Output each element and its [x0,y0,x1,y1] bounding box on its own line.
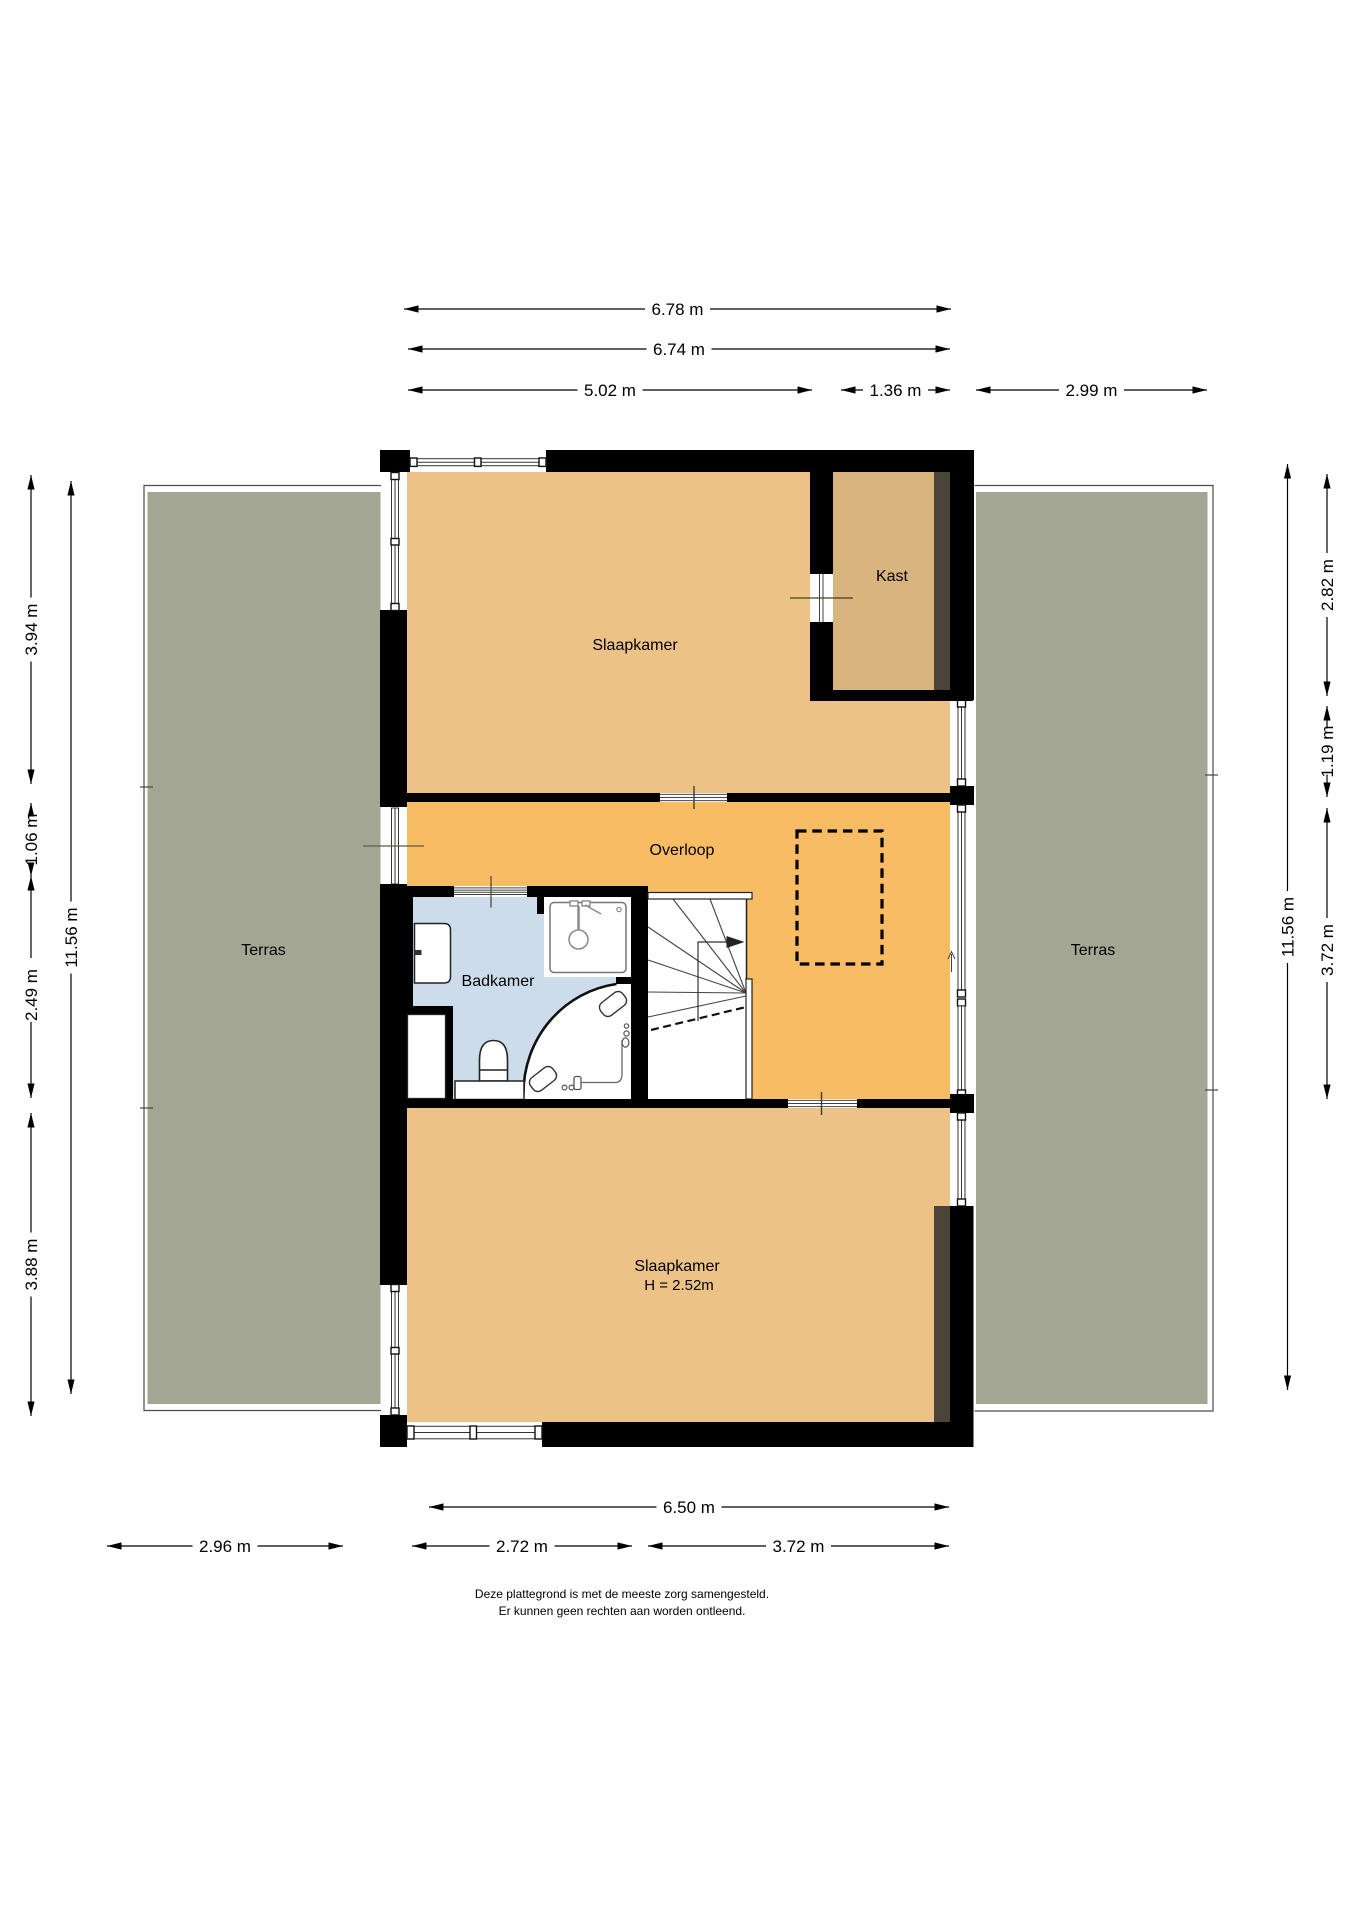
svg-text:Terras: Terras [1071,942,1115,959]
svg-text:Terras: Terras [241,942,285,959]
svg-text:3.88 m: 3.88 m [22,1239,41,1291]
svg-text:2.72 m: 2.72 m [496,1537,548,1556]
svg-text:6.74 m: 6.74 m [653,340,705,359]
svg-text:3.72 m: 3.72 m [1318,924,1337,976]
svg-text:2.82 m: 2.82 m [1318,559,1337,611]
svg-text:Overloop: Overloop [650,842,715,859]
svg-text:1.19 m: 1.19 m [1318,726,1337,778]
svg-text:2.99 m: 2.99 m [1066,381,1118,400]
svg-text:11.56 m: 11.56 m [1279,897,1298,957]
svg-text:Deze plattegrond is met de mee: Deze plattegrond is met de meeste zorg s… [475,1587,769,1601]
svg-text:2.96 m: 2.96 m [199,1537,251,1556]
svg-text:2.49 m: 2.49 m [22,969,41,1021]
svg-text:6.50 m: 6.50 m [663,1498,715,1517]
svg-text:3.72 m: 3.72 m [773,1537,825,1556]
svg-text:1.36 m: 1.36 m [870,381,922,400]
svg-text:Slaapkamer: Slaapkamer [634,1258,720,1275]
svg-text:11.56 m: 11.56 m [62,907,81,967]
svg-text:3.94 m: 3.94 m [22,604,41,656]
svg-text:6.78 m: 6.78 m [652,300,704,319]
svg-text:1.06 m: 1.06 m [22,814,41,866]
svg-text:Badkamer: Badkamer [462,973,536,990]
svg-text:5.02 m: 5.02 m [584,381,636,400]
svg-text:Er kunnen geen rechten aan wor: Er kunnen geen rechten aan worden ontlee… [499,1604,746,1618]
svg-text:Slaapkamer: Slaapkamer [592,637,678,654]
svg-text:Kast: Kast [876,568,909,585]
svg-text:H = 2.52m: H = 2.52m [644,1277,714,1294]
